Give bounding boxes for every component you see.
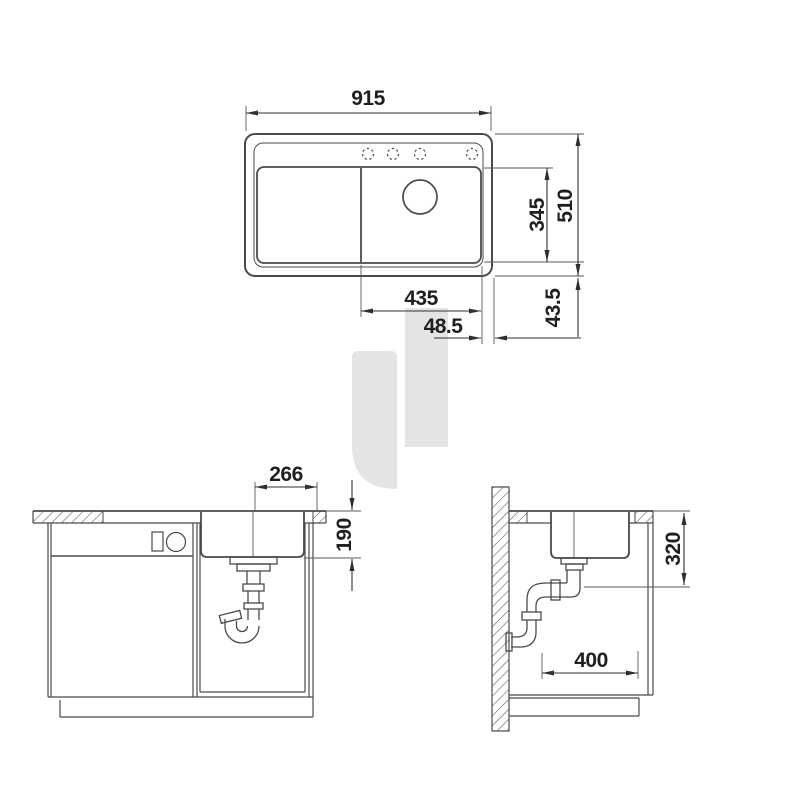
dim-label-edge-offset-horizontal: 48.5 bbox=[424, 315, 464, 338]
dim-label-drain-clearance: 400 bbox=[574, 649, 608, 672]
sink-rim bbox=[254, 143, 483, 267]
drain-hole bbox=[403, 180, 437, 214]
appliance-knob bbox=[167, 533, 186, 552]
dim-label-edge-offset-vertical: 43.5 bbox=[542, 288, 565, 328]
sink-spec-drawing: 915 345 510 43.5 435 48.5 bbox=[0, 0, 800, 800]
sink-outer-edge bbox=[245, 134, 492, 276]
side-view-drawing: 320 400 bbox=[492, 487, 690, 731]
bowl-section-front bbox=[201, 512, 304, 557]
top-view-drawing: 915 345 510 43.5 435 48.5 bbox=[245, 87, 584, 344]
cabinet-front bbox=[48, 523, 313, 717]
dim-label-under-counter-depth: 320 bbox=[662, 532, 685, 566]
technical-drawing-page: 915 345 510 43.5 435 48.5 bbox=[0, 0, 800, 800]
bowl-area bbox=[257, 167, 481, 263]
dim-label-bowl-depth: 190 bbox=[333, 518, 356, 552]
front-view-drawing: 266 190 bbox=[33, 463, 361, 717]
appliance-dispenser bbox=[152, 532, 163, 551]
bowl-section-side bbox=[551, 512, 629, 558]
dim-label-bowl-inner-depth: 345 bbox=[526, 197, 549, 231]
dim-label-bowl-inner-width: 435 bbox=[404, 287, 438, 310]
drain-trap-side bbox=[506, 558, 587, 651]
dim-label-overall-width: 915 bbox=[351, 87, 385, 110]
dim-label-drain-to-edge: 266 bbox=[269, 463, 303, 486]
tap-hole-markings bbox=[363, 149, 478, 160]
drain-trap-front bbox=[219, 557, 277, 643]
dim-label-overall-depth: 510 bbox=[554, 189, 577, 223]
